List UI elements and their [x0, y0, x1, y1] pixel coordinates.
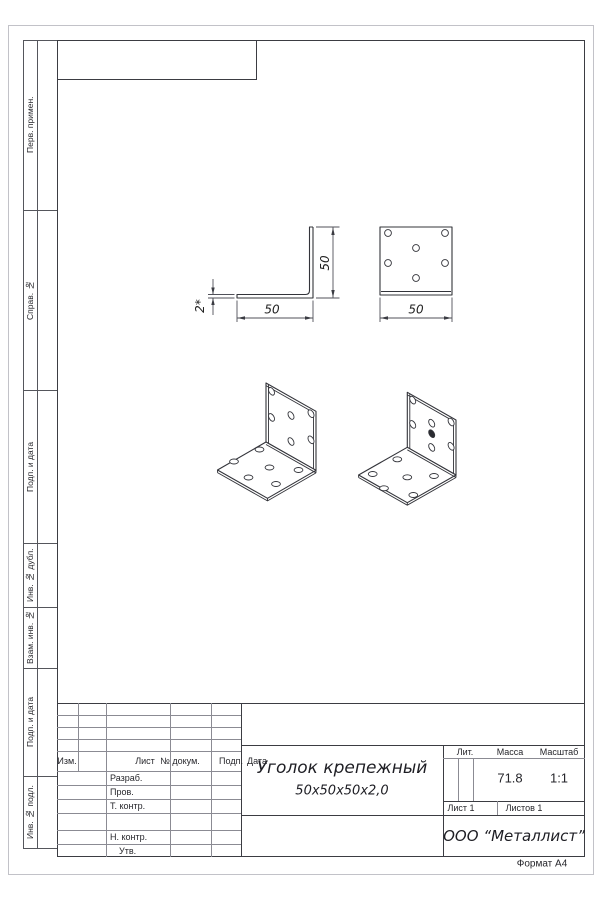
grid-line	[57, 703, 585, 704]
part-dimensions: 50х50х50х2,0	[295, 783, 388, 798]
grid-line	[57, 813, 241, 814]
sidebar-label-vzam-inv: Взам. инв. №	[23, 607, 37, 668]
hole	[385, 230, 392, 237]
grid-line	[443, 758, 585, 759]
part-name: Уголок крепежный	[257, 758, 428, 778]
hole	[442, 260, 449, 267]
sidebar-label-podp-data-2: Подп. и дата	[23, 668, 37, 776]
sidebar-label-sprav-no: Справ. №	[23, 210, 37, 390]
grid-line	[57, 844, 241, 845]
grid-line	[57, 785, 241, 786]
hole	[442, 230, 449, 237]
mass-value: 71.8	[497, 770, 522, 785]
sidebar-label-perv-primen: Перв. примен.	[23, 40, 37, 210]
col-header-podp: Подп.	[219, 756, 243, 766]
sheet-number: Лист 1	[447, 803, 474, 813]
grid-line	[57, 771, 241, 772]
grid-line	[57, 751, 241, 752]
grid-line	[23, 848, 57, 849]
grid-line	[57, 715, 241, 716]
col-header-list: Лист	[135, 756, 155, 766]
row-prov: Пров.	[110, 787, 134, 797]
grid-line	[458, 758, 459, 801]
grid-line	[241, 745, 585, 746]
sheets-total: Листов 1	[506, 803, 543, 813]
sidebar-label-podp-data-1: Подп. и дата	[23, 390, 37, 543]
row-utv: Утв.	[119, 846, 136, 856]
grid-line	[57, 830, 241, 831]
row-tkontr: Т. контр.	[110, 801, 145, 811]
hole	[385, 260, 392, 267]
dim-side-height: 50	[318, 255, 332, 271]
sidebar-label-inv-dubl: Инв. № дубл.	[23, 543, 37, 607]
top-view	[380, 227, 452, 295]
lit-label: Лит.	[457, 747, 474, 757]
dim-side-width: 50	[264, 303, 280, 317]
mass-label: Масса	[497, 747, 524, 757]
scale-label: Масштаб	[540, 747, 579, 757]
format-label: Формат А4	[517, 859, 568, 870]
grid-line	[37, 40, 38, 848]
grid-line	[497, 801, 498, 815]
dim-thickness: 2*	[193, 299, 207, 313]
row-nkontr: Н. контр.	[110, 832, 147, 842]
sidebar-label-inv-podl: Инв. № подл.	[23, 776, 37, 848]
hole	[413, 275, 420, 282]
drawing-sheet-page: Перв. примен. Справ. № Подп. и дата Инв.…	[0, 0, 600, 900]
iso-view-right	[359, 392, 456, 505]
grid-line	[473, 758, 474, 801]
col-header-izm: Изм.	[57, 756, 76, 766]
row-razrab: Разраб.	[110, 773, 142, 783]
company-name: ООО “Металлист”	[443, 827, 585, 845]
grid-line	[57, 799, 241, 800]
side-view	[237, 227, 313, 298]
grid-line	[78, 703, 79, 771]
scale-value: 1:1	[550, 770, 568, 785]
grid-line	[57, 739, 241, 740]
dimensions: 50 50 2* 50	[193, 227, 452, 322]
hole	[413, 245, 420, 252]
grid-line	[241, 815, 585, 816]
drawing-views: 50 50 2* 50	[150, 200, 490, 520]
col-header-doc: № докум.	[160, 756, 200, 766]
iso-view-left	[218, 383, 317, 501]
grid-line	[57, 727, 241, 728]
grid-line	[241, 703, 242, 857]
designation-box-top	[57, 40, 257, 80]
dim-top-width: 50	[408, 303, 424, 317]
